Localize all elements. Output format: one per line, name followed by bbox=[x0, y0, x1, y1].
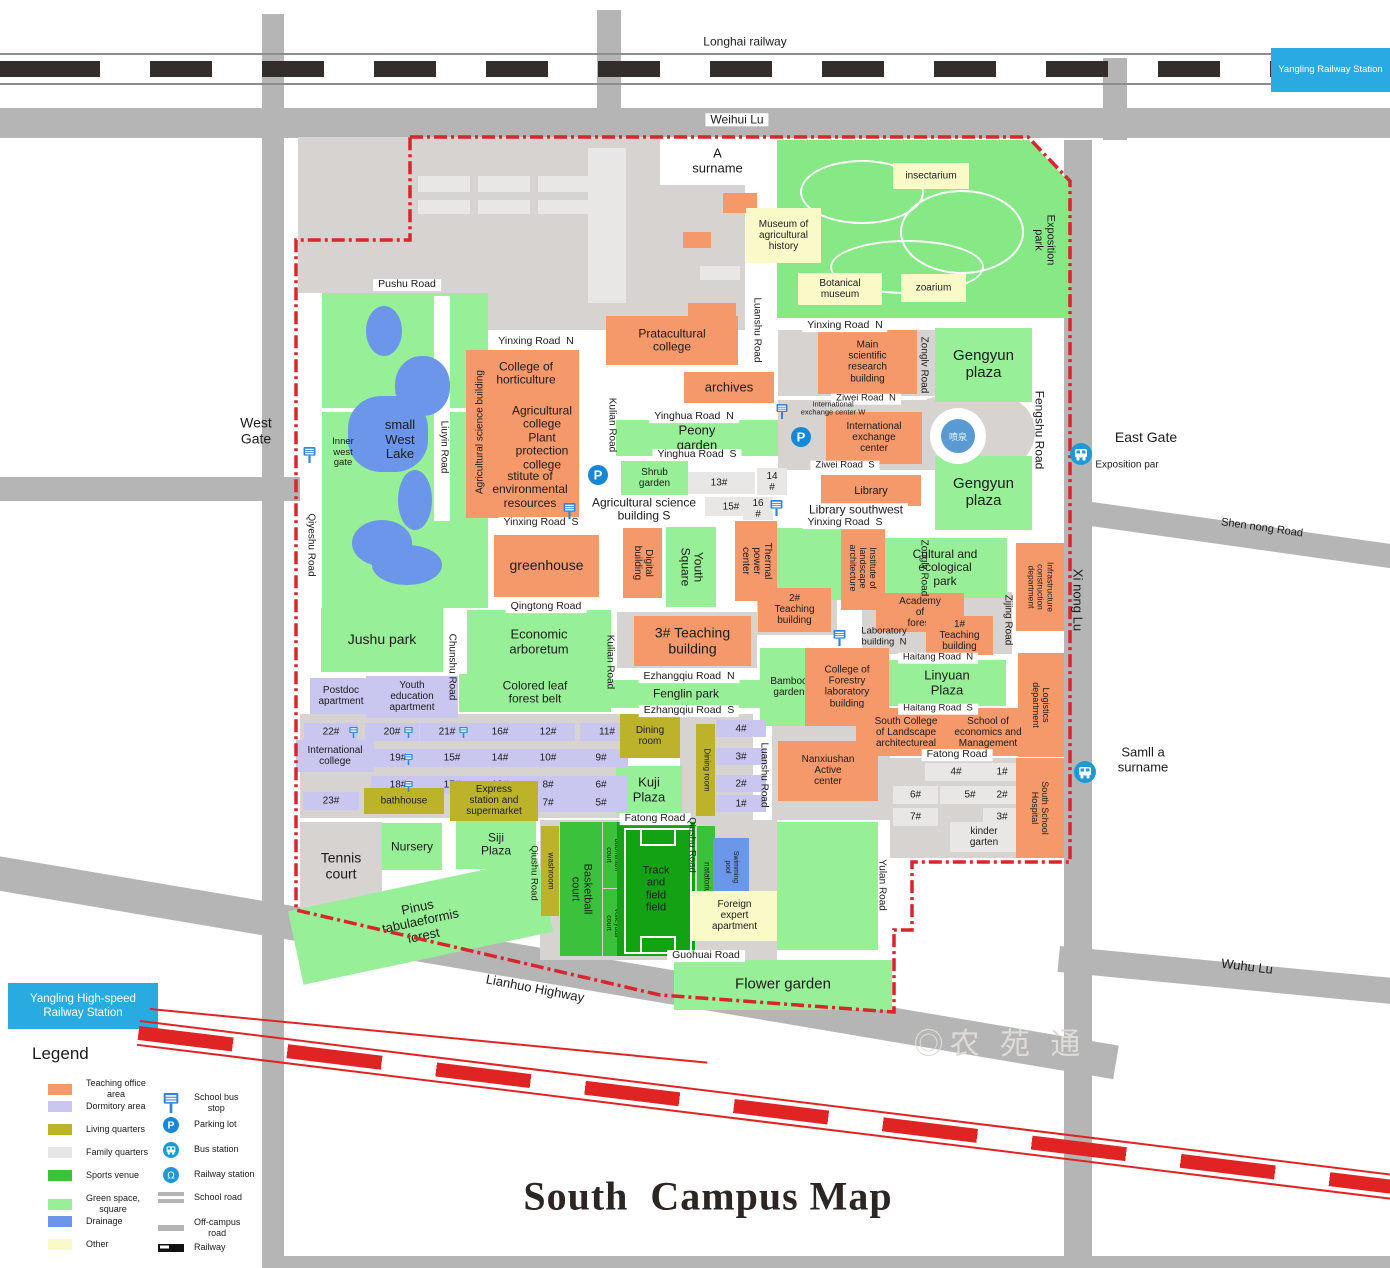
legend-icon-bus: Bus station bbox=[158, 1142, 278, 1158]
zijing-road-label: Zijing Road bbox=[1002, 595, 1013, 646]
agricultural-science-building-label: Agricultural science building bbox=[474, 370, 485, 494]
kulian-road-label: Kulian Road bbox=[606, 398, 617, 452]
svg-text:P: P bbox=[594, 468, 603, 483]
legend-swatch-color bbox=[48, 1216, 72, 1227]
qiushu-road-label: Qiushu Road bbox=[686, 817, 697, 872]
legend-swatch-label: Family quarters bbox=[86, 1147, 148, 1158]
yangling-highspeed-station-box: Yangling High-speed Railway Station bbox=[8, 983, 158, 1029]
legend-swatch-label: Living quarters bbox=[86, 1124, 145, 1135]
legend-icon-label: Railway bbox=[194, 1242, 226, 1253]
international-exchange-center-w-label: International exchange center W bbox=[801, 401, 866, 418]
samll-a-surname-label: Samll a surname bbox=[1118, 745, 1169, 774]
offroad-icon bbox=[158, 1224, 184, 1232]
school-bus-stop-icon bbox=[776, 404, 788, 419]
legend-icon-railway: Railway bbox=[158, 1242, 278, 1253]
schoolroad-icon bbox=[158, 1192, 184, 1204]
legend-icon-label: School road bbox=[194, 1192, 242, 1203]
qingtong-road-label: Qingtong Road bbox=[506, 601, 587, 613]
legend-icon-railstation: ΩRailway station bbox=[158, 1167, 278, 1183]
legend-swatch-teaching: Teaching office area bbox=[48, 1078, 158, 1101]
legend-swatch-label: Other bbox=[86, 1239, 109, 1250]
agricultural-college-label: Agricultural college Plant protection co… bbox=[512, 404, 572, 471]
luanshu-road-label: Luanshu Road bbox=[758, 742, 769, 807]
legend-icon-schoolroad: School road bbox=[158, 1192, 278, 1204]
school-bus-stop-icon bbox=[404, 754, 413, 765]
chunshu-road-label: Chunshu Road bbox=[446, 634, 457, 701]
legend-swatch-cell: Family quarters bbox=[48, 1147, 158, 1158]
legend-swatch-label: Dormitory area bbox=[86, 1101, 146, 1112]
zonglv-road-label: Zonglv Road bbox=[918, 337, 929, 394]
small-west-lake-label: small West Lake bbox=[385, 418, 415, 462]
school-bus-stop-icon bbox=[833, 630, 846, 646]
exposition-park-label: Exposition park bbox=[1032, 215, 1057, 266]
agricultural-science-building-s-label: Agricultural science building S bbox=[587, 497, 701, 524]
legend-icon-label: Railway station bbox=[194, 1169, 255, 1180]
legend-swatch-color bbox=[48, 1101, 72, 1112]
luanshu-road-label: Luanshu Road bbox=[751, 297, 762, 362]
school-economics-label: School of economics and Management bbox=[954, 716, 1021, 750]
library-southwest-label: Library southwest bbox=[804, 503, 908, 516]
page-title: South Campus Map bbox=[523, 1173, 892, 1220]
school-bus-stop-icon bbox=[563, 503, 576, 519]
ziwei-road-s-label: Ziwei Road S bbox=[810, 461, 879, 472]
inner-west-gate-label: Inner west gate bbox=[332, 437, 354, 469]
institute-environmental-label: stitute of environmental resources bbox=[492, 470, 567, 510]
bus-station-icon bbox=[1070, 443, 1092, 465]
school-bus-stop-icon bbox=[349, 727, 358, 738]
yulan-road-label: Yulan Road bbox=[876, 859, 887, 911]
legend-icon-busstop: School bus stop bbox=[158, 1092, 278, 1115]
legend-swatch-color bbox=[48, 1170, 72, 1181]
fountain: 喷泉 bbox=[930, 408, 986, 464]
school-bus-stop-icon bbox=[303, 447, 316, 463]
parking-lot-icon: P bbox=[791, 427, 811, 447]
school-bus-stop-icon bbox=[404, 781, 413, 792]
yinxing-road-n-label: Yinxing Road N bbox=[802, 320, 887, 332]
legend-swatch-label: Sports venue bbox=[86, 1170, 139, 1181]
legend-swatch-green: Green space, square bbox=[48, 1193, 158, 1216]
ezhangqiu-road-s-label: Ezhangqiu Road S bbox=[639, 705, 739, 717]
weihui-lu-label: Weihui Lu bbox=[705, 113, 768, 126]
ezhangqiu-road-n-label: Ezhangqiu Road N bbox=[638, 671, 739, 683]
yinghua-road-n-label: Yinghua Road N bbox=[649, 411, 739, 423]
yinxing-road-n-label: Yinxing Road N bbox=[493, 336, 578, 348]
east-gate-label: East Gate bbox=[1115, 430, 1177, 446]
railway-icon bbox=[158, 1243, 184, 1253]
longhai-railway-label: Longhai railway bbox=[703, 35, 786, 48]
guohuai-road-label: Guohuai Road bbox=[667, 950, 745, 962]
college-of-horticulture-label: College of horticulture bbox=[496, 361, 555, 388]
fatong-road-label: Fatong Road bbox=[620, 813, 691, 825]
exposition-park-ref-label: Exposition par bbox=[1095, 459, 1158, 470]
south-college-landscape-label: South College of Landscape architecturea… bbox=[875, 716, 938, 750]
school-bus-stop-icon bbox=[404, 727, 413, 738]
school-bus-stop-icon bbox=[770, 500, 783, 516]
qiyeshu-road-label: Qiyeshu Road bbox=[305, 513, 316, 576]
legend-swatch-living: Living quarters bbox=[48, 1124, 158, 1135]
laboratory-building-n-label: Laboratory building N bbox=[861, 626, 906, 647]
school-bus-stop-icon bbox=[459, 727, 468, 738]
fatong-road-label: Fatong Road bbox=[922, 749, 993, 761]
legend-title: Legend bbox=[32, 1044, 89, 1064]
railstation-icon: Ω bbox=[158, 1167, 184, 1183]
yangling-railway-station-box: Yangling Railway Station bbox=[1271, 48, 1390, 92]
legend-swatch-label: Drainage bbox=[86, 1216, 123, 1227]
legend-icon-label: Off-campus road bbox=[194, 1217, 240, 1240]
xi-nong-lu-label: Xi nong Lu bbox=[1070, 569, 1085, 631]
zonglv-road-label: Zonglv Road bbox=[918, 540, 929, 597]
legend-swatch-sports: Sports venue bbox=[48, 1170, 158, 1181]
legend: Legend Teaching office areaDormitory are… bbox=[18, 1042, 278, 1268]
parking-lot-icon: P bbox=[588, 465, 608, 485]
yangling-highspeed-station-label: Yangling High-speed Railway Station bbox=[30, 992, 136, 1021]
legend-icon-label: Bus station bbox=[194, 1144, 239, 1155]
legend-swatch-drainage: Drainage bbox=[48, 1216, 158, 1227]
haitang-road-s-label: Haitang Road S bbox=[898, 704, 978, 715]
south-campus-map: A surnameTennis court13#14 #15#16 #4#1#6… bbox=[0, 0, 1390, 1268]
busstop-icon bbox=[158, 1093, 184, 1113]
legend-swatch-other: Other bbox=[48, 1239, 158, 1250]
legend-swatch-color bbox=[48, 1084, 72, 1095]
legend-swatch-color bbox=[48, 1124, 72, 1135]
kulian-road-label: Kulian Road bbox=[604, 635, 615, 689]
yangling-railway-station-label: Yangling Railway Station bbox=[1278, 64, 1382, 76]
qiushu-road-label: Qiushu Road bbox=[528, 845, 539, 900]
fengshu-road-label: Fengshu Road bbox=[1032, 391, 1045, 470]
bus-station-icon bbox=[1074, 761, 1096, 783]
legend-swatch-color bbox=[48, 1147, 72, 1158]
legend-swatch-label: Teaching office area bbox=[86, 1078, 146, 1101]
watermark: ◎农 苑 通 bbox=[914, 1019, 1087, 1063]
legend-swatch-color bbox=[48, 1199, 72, 1210]
legend-swatch-label: Green space, square bbox=[86, 1193, 140, 1216]
legend-icon-label: School bus stop bbox=[194, 1092, 239, 1115]
legend-swatch-dorm: Dormitory area bbox=[48, 1101, 158, 1112]
svg-text:Ω: Ω bbox=[167, 1171, 174, 1182]
bus-icon bbox=[158, 1142, 184, 1158]
legend-icon-offroad: Off-campus road bbox=[158, 1217, 278, 1240]
svg-text:P: P bbox=[797, 430, 806, 445]
haitang-road-n-label: Haitang Road N bbox=[898, 653, 978, 664]
west-gate-label: West Gate bbox=[240, 415, 272, 446]
legend-icon-label: Parking lot bbox=[194, 1119, 237, 1130]
legend-swatch-color bbox=[48, 1239, 72, 1250]
yinghua-road-s-label: Yinghua Road S bbox=[652, 449, 741, 461]
parking-icon: P bbox=[158, 1117, 184, 1133]
fountain-label: 喷泉 bbox=[949, 430, 967, 443]
liuyin-road-label: Liuyin Road bbox=[438, 421, 449, 474]
yinxing-road-s-label: Yinxing Road S bbox=[803, 517, 888, 529]
svg-text:P: P bbox=[168, 1121, 175, 1132]
pushu-road-label: Pushu Road bbox=[373, 279, 441, 291]
legend-icon-parking: PParking lot bbox=[158, 1117, 278, 1133]
